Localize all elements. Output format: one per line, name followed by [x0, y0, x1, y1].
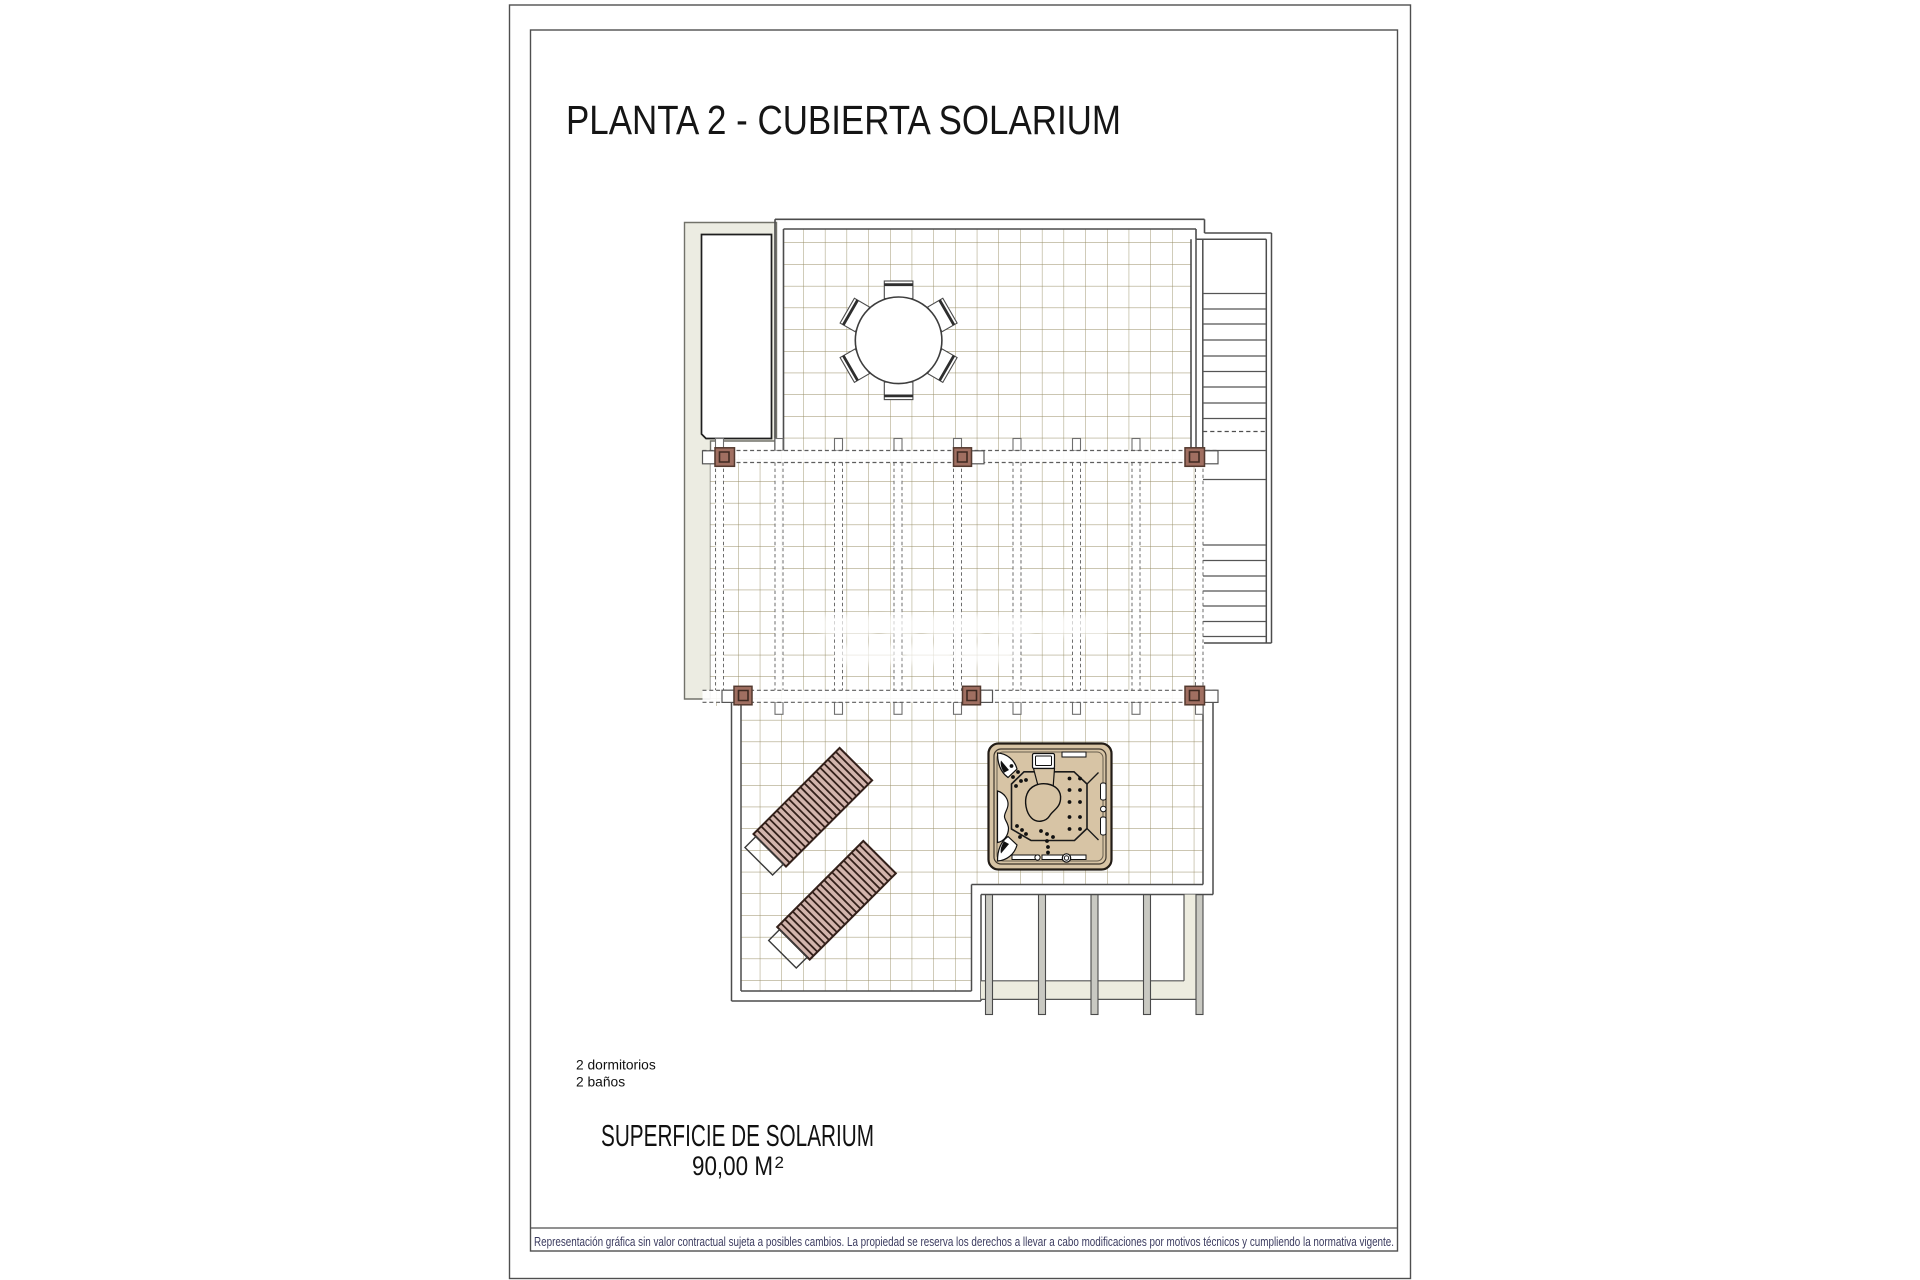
- svg-text:90,00 M: 90,00 M: [692, 1151, 773, 1181]
- svg-text:2 dormitorios: 2 dormitorios: [576, 1058, 656, 1073]
- svg-text:Representación gráfica sin val: Representación gráfica sin valor contrac…: [534, 1235, 1394, 1249]
- svg-text:2 baños: 2 baños: [576, 1075, 625, 1090]
- svg-text:2: 2: [775, 1153, 784, 1172]
- svg-text:PLANTA 2 - CUBIERTA SOLARIUM: PLANTA 2 - CUBIERTA SOLARIUM: [566, 97, 1121, 143]
- svg-text:SUPERFICIE DE SOLARIUM: SUPERFICIE DE SOLARIUM: [601, 1119, 874, 1153]
